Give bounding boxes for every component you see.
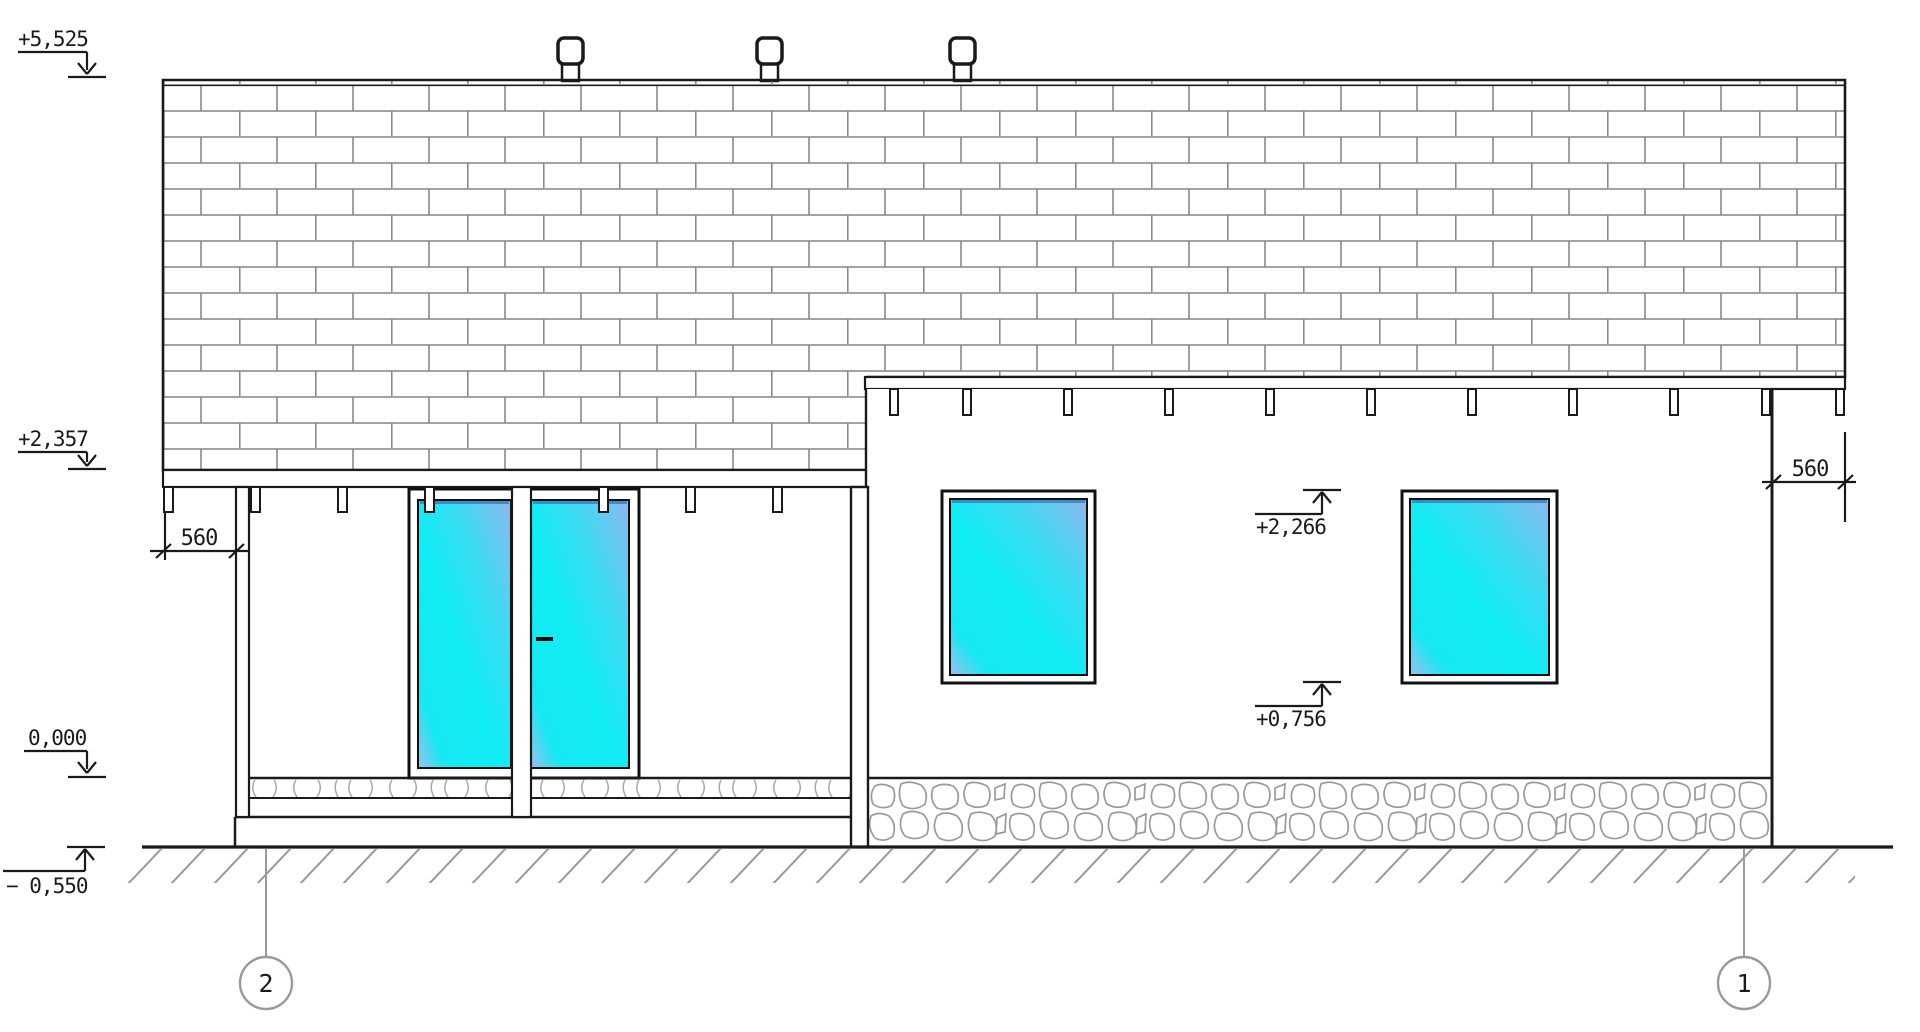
chimney-vents xyxy=(558,38,975,81)
door-glass-left xyxy=(418,500,511,768)
window-middle-glass xyxy=(950,499,1087,675)
porch-post-left xyxy=(236,487,249,817)
door-glass-right xyxy=(531,500,629,768)
ground xyxy=(125,847,1893,883)
level-marker-ground: − 0,550 xyxy=(3,847,105,898)
dimension-left-label: 560 xyxy=(181,526,218,551)
chimney-vent-3 xyxy=(950,38,975,81)
level-label-zero: 0,000 xyxy=(28,726,87,750)
chimney-vent-2 xyxy=(757,38,782,81)
ground-hatch xyxy=(125,849,1855,883)
elevation-drawing: +5,525 +2,357 0,000 − 0,550 +2,266 +0,75… xyxy=(0,0,1920,1032)
left-eave-fascia xyxy=(163,470,868,487)
porch-corner-post xyxy=(851,487,868,847)
level-label-ridge: +5,525 xyxy=(18,27,88,51)
porch-stone-band xyxy=(249,779,851,798)
elevation-canvas: +5,525 +2,357 0,000 − 0,550 +2,266 +0,75… xyxy=(0,0,1920,1032)
level-label-eave: +2,357 xyxy=(18,427,88,451)
level-label-window-sill: +0,756 xyxy=(1256,707,1326,731)
window-middle xyxy=(942,491,1095,683)
grid-bubble-1-label: 1 xyxy=(1736,969,1751,998)
window-right-glass xyxy=(1410,499,1549,675)
level-marker-eave: +2,357 xyxy=(18,427,106,469)
level-label-window-head: +2,266 xyxy=(1256,515,1326,539)
chimney-vent-1 xyxy=(558,38,583,81)
right-eave-fascia xyxy=(865,377,1845,389)
level-label-ground: − 0,550 xyxy=(6,874,88,898)
dimension-right-overhang: 560 xyxy=(1762,432,1856,522)
dimension-right-label: 560 xyxy=(1792,457,1829,482)
porch-post-center xyxy=(512,487,531,817)
level-marker-zero: 0,000 xyxy=(24,726,106,777)
level-marker-ridge: +5,525 xyxy=(18,27,106,77)
window-right xyxy=(1402,491,1557,683)
door-handle xyxy=(536,637,553,641)
grid-bubble-2-label: 2 xyxy=(258,969,273,998)
dimension-left-overhang: 560 xyxy=(150,512,248,560)
